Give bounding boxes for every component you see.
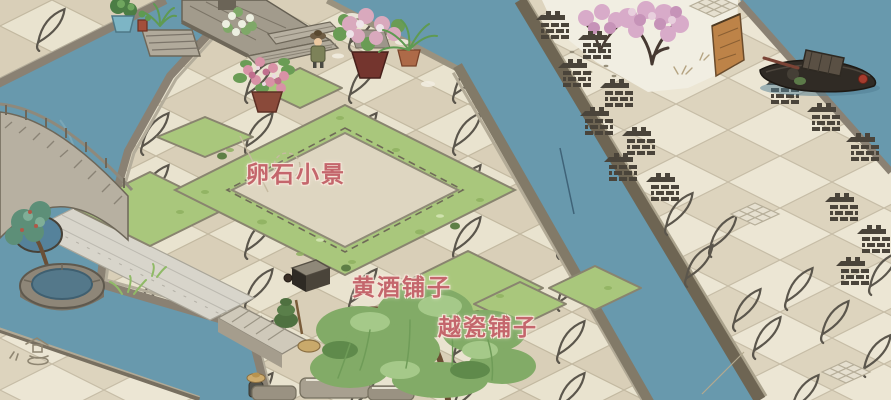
game-viewport[interactable]: 卵石小景 黄酒铺子 越瓷铺子 — [0, 0, 891, 400]
boat-lantern — [859, 75, 868, 84]
label-yellow-wine-shop[interactable]: 黄酒铺子 — [352, 276, 452, 299]
label-pebble-scene[interactable]: 卵石小景 — [246, 163, 346, 186]
round-well[interactable] — [20, 264, 104, 311]
scene-canvas — [0, 0, 891, 400]
label-yue-porcelain-shop[interactable]: 越瓷铺子 — [438, 316, 538, 339]
straw-mat — [298, 340, 320, 352]
